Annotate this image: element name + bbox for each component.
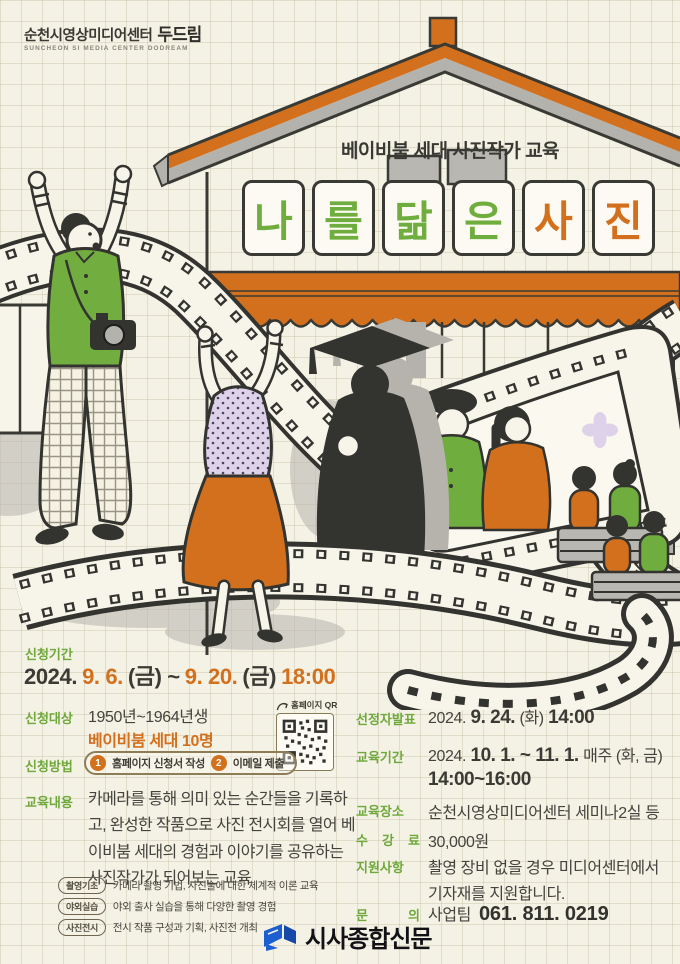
support-line1: 촬영 장비 없을 경우 미디어센터에서 xyxy=(428,854,659,878)
curriculum-desc: 카메라 촬영 기법, 사진술에 대한 체계적 이론 교육 xyxy=(113,878,318,893)
edu-period-time: 14:00~16:00 xyxy=(428,769,662,791)
title-letter: 닮 xyxy=(394,188,433,249)
media-center-logo: 순천시영상미디어센터 두드림 SUNCHEON SI MEDIA CENTER … xyxy=(24,26,201,52)
title-letter-box: 사 xyxy=(522,180,585,256)
camera-lens-icon xyxy=(337,435,359,457)
title-letter-box: 닮 xyxy=(382,180,445,256)
list-item: 촬영기초 카메라 촬영 기법, 사진술에 대한 체계적 이론 교육 xyxy=(58,877,318,894)
support-value: 촬영 장비 없을 경우 미디어센터에서 기자재를 지원합니다. xyxy=(428,854,659,904)
film-strip-right xyxy=(572,310,680,606)
title-letter-box: 진 xyxy=(592,180,655,256)
curriculum-desc: 전시 작품 구성과 기획, 사진전 개최 xyxy=(113,920,258,935)
step-2-text: 이메일 제출 xyxy=(233,755,284,771)
shadow-blobs xyxy=(0,400,370,650)
awning xyxy=(207,272,680,327)
newspaper-logo-icon xyxy=(262,922,298,952)
curved-arrow-icon xyxy=(276,700,289,711)
curriculum-tag: 촬영기초 xyxy=(58,877,106,894)
contact-value: 사업팀 061. 811. 0219 xyxy=(428,901,609,926)
announcement-value: 2024. 9. 24. (화) 14:00 xyxy=(428,704,594,729)
title-letter: 진 xyxy=(604,188,643,249)
edu-period-label: 교육기간 xyxy=(356,747,420,766)
logo-name: 순천시영상미디어센터 xyxy=(24,29,152,44)
left-window xyxy=(0,305,66,433)
curriculum-label: 교육내용 xyxy=(25,792,81,811)
curriculum-tag: 야외실습 xyxy=(58,898,106,915)
edu-place-label: 교육장소 xyxy=(356,801,420,820)
title-letter: 은 xyxy=(464,188,503,249)
man-illustration xyxy=(29,166,136,547)
watermark-text: 시사종합신문 xyxy=(305,919,431,954)
target-label: 신청대상 xyxy=(25,708,81,727)
bench-couple-2 xyxy=(592,511,680,600)
edu-place-value: 순천시영상미디어센터 세미나2실 등 xyxy=(428,799,659,823)
poster: 순천시영상미디어센터 두드림 SUNCHEON SI MEDIA CENTER … xyxy=(0,0,680,964)
camera-icon xyxy=(90,313,136,350)
announce-date: 9. 24. xyxy=(471,707,516,728)
announce-year: 2024. xyxy=(428,710,466,727)
apply-end-day: (금) xyxy=(242,664,276,689)
apply-period-value: 2024.9. 6.(금) ~9. 20.(금)18:00 xyxy=(24,659,340,691)
house xyxy=(154,18,680,655)
target-line2: 베이비붐 세대 10명 xyxy=(88,727,213,751)
windows xyxy=(406,322,674,554)
film-strip-curl xyxy=(408,614,653,704)
film-strip-left xyxy=(0,239,522,556)
edu-period-value: 2024. 10. 1. ~ 11. 1. 매주 (화, 금) 14:00~16… xyxy=(428,742,662,791)
contact-phone: 061. 811. 0219 xyxy=(479,903,609,926)
logo-brand-dodream: 두드림 xyxy=(157,26,201,44)
step-number-badge: 2 xyxy=(211,755,227,771)
announce-day: (화) xyxy=(520,710,544,727)
flower-icon xyxy=(398,412,618,488)
target-value: 1950년~1964년생 베이비붐 세대 10명 xyxy=(88,703,213,751)
title-letter: 사 xyxy=(534,188,573,249)
title-letter-box: 은 xyxy=(452,180,515,256)
announce-time: 14:00 xyxy=(548,707,594,728)
edu-period-weekly: 매주 (화, 금) xyxy=(583,748,662,765)
support-label: 지원사항 xyxy=(356,857,420,876)
woman-illustration xyxy=(183,321,288,650)
apply-start-date: 9. 6. xyxy=(82,664,123,689)
edu-period-range: 10. 1. ~ 11. 1. xyxy=(471,745,579,766)
bench-couple-1 xyxy=(558,459,662,562)
qr-label: 홈페이지 QR xyxy=(291,699,337,711)
step-1-text: 홈페이지 신청서 작성 xyxy=(112,755,205,771)
program-subtitle: 베이비붐 세대 사진작가 교육 xyxy=(220,136,680,163)
apply-end-date: 9. 20. xyxy=(185,664,238,689)
roof xyxy=(154,44,680,186)
apply-start-day: (금) ~ xyxy=(128,664,180,689)
main-title: 나 를 닮 은 사 진 xyxy=(242,180,655,256)
fee-label: 수 강 료 xyxy=(356,830,420,849)
target-line1: 1950년~1964년생 xyxy=(88,703,213,727)
title-letter: 나 xyxy=(254,188,293,249)
graduate-illustration xyxy=(309,318,454,558)
method-label: 신청방법 xyxy=(25,756,81,775)
announcement-label: 선정자발표 xyxy=(356,709,420,728)
couple-illustration xyxy=(417,389,550,530)
apply-year: 2024. xyxy=(24,664,77,689)
edu-period-year: 2024. xyxy=(428,748,466,765)
curriculum-tag: 사진전시 xyxy=(58,919,106,936)
contact-team: 사업팀 xyxy=(428,901,471,925)
list-item: 야외실습 야외 출사 실습을 통해 다양한 촬영 경험 xyxy=(58,898,318,915)
pillar xyxy=(644,322,674,554)
title-letter-box: 나 xyxy=(242,180,305,256)
title-letter-box: 를 xyxy=(312,180,375,256)
watermark: 시사종합신문 xyxy=(262,919,431,954)
title-letter: 를 xyxy=(324,188,363,249)
film-frame-couple xyxy=(352,327,680,592)
film-strip-bottom xyxy=(20,553,680,635)
logo-subtext: SUNCHEON SI MEDIA CENTER DODREAM xyxy=(24,46,201,52)
curriculum-desc: 야외 출사 실습을 통해 다양한 촬영 경험 xyxy=(113,899,276,914)
step-number-badge: 1 xyxy=(90,755,106,771)
poster-illustration xyxy=(0,0,680,710)
chimney xyxy=(430,18,456,46)
method-steps: 1 홈페이지 신청서 작성 2 이메일 제출 xyxy=(84,751,297,775)
fee-value: 30,000원 xyxy=(428,828,489,852)
apply-deadline-time: 18:00 xyxy=(281,664,335,689)
